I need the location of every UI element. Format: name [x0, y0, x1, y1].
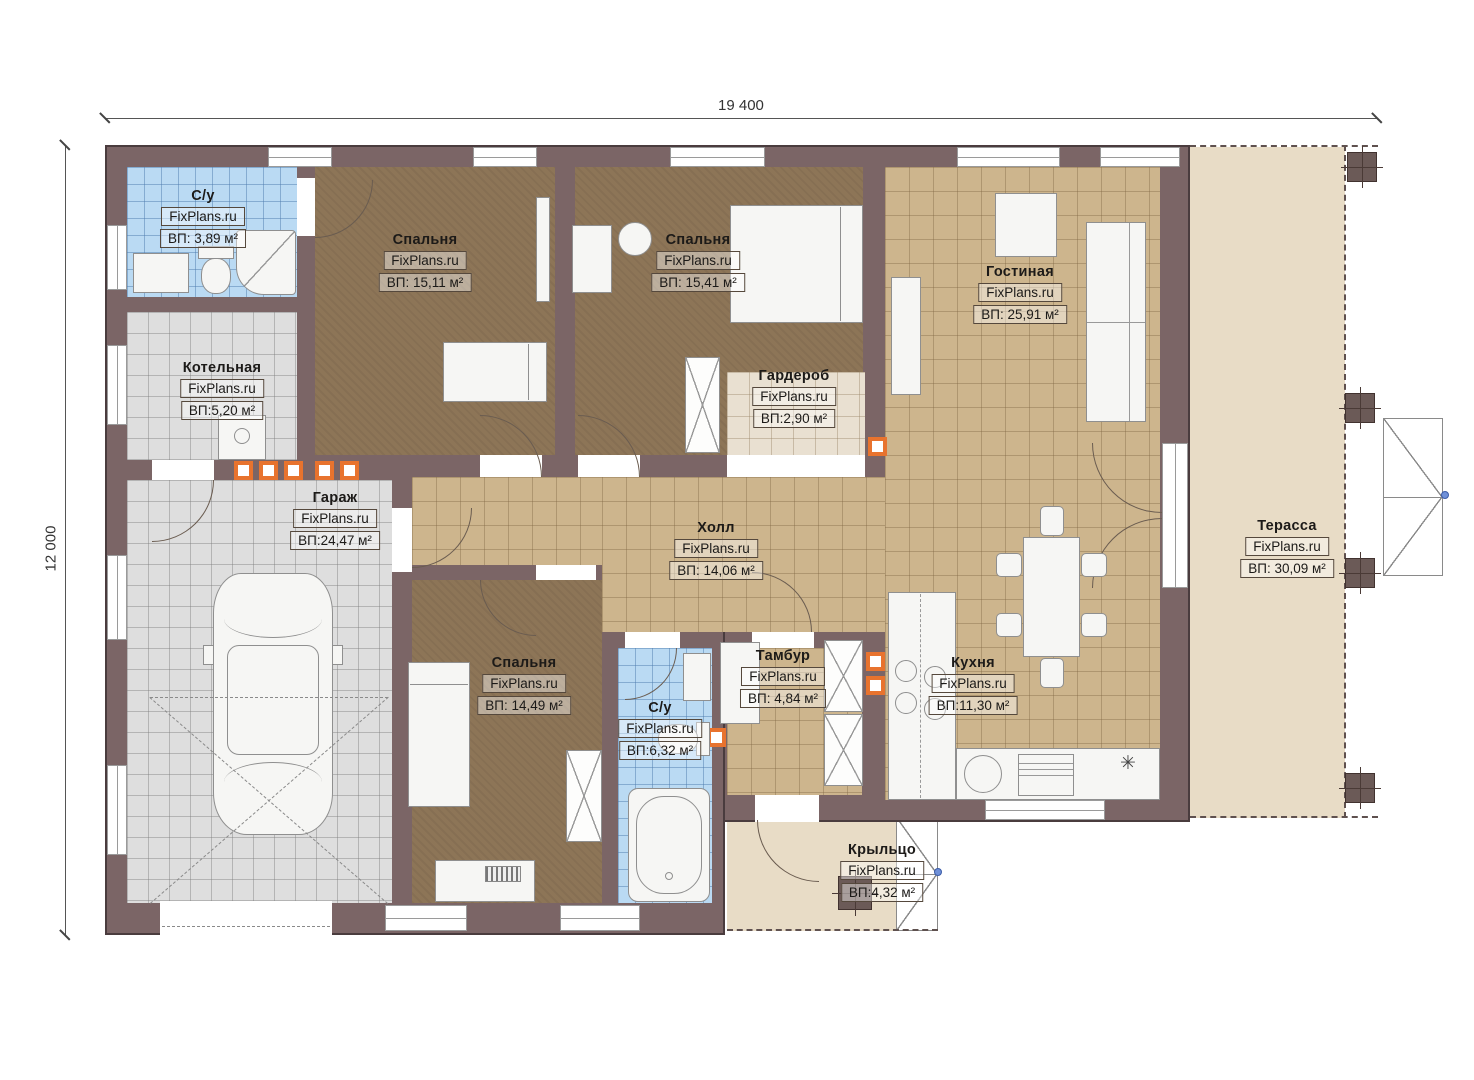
- oven: [1018, 754, 1074, 796]
- room-label-bedroom1: Спальня FixPlans.ru ВП: 15,11 м²: [379, 232, 472, 292]
- room-label-living: Гостиная FixPlans.ru ВП: 25,91 м²: [973, 264, 1067, 324]
- window: [385, 905, 467, 931]
- dresser-detail: [485, 866, 521, 882]
- car-windshield: [224, 600, 322, 638]
- room-area: ВП:4,32 м²: [841, 883, 923, 902]
- room-name: Спальня: [651, 232, 745, 248]
- room-name: Холл: [669, 520, 763, 536]
- room-label-bath1: С/у FixPlans.ru ВП: 3,89 м²: [160, 188, 246, 248]
- radiator-marker: [315, 461, 334, 480]
- terrace-column: [1345, 558, 1375, 588]
- radiator-marker: [866, 652, 885, 671]
- room-area: ВП: 14,49 м²: [477, 696, 571, 715]
- room-name: Гардероб: [752, 368, 836, 384]
- room-name: Гостиная: [973, 264, 1067, 280]
- room-area: ВП: 15,11 м²: [379, 273, 472, 292]
- window: [107, 345, 127, 425]
- terrace-door-opening: [1162, 443, 1188, 588]
- room-floor-terrace: [1190, 147, 1345, 818]
- chair: [1040, 506, 1064, 536]
- room-name: Крыльцо: [840, 842, 924, 858]
- brand-watermark: FixPlans.ru: [293, 509, 377, 528]
- kitchen-sink: [964, 755, 1002, 793]
- chair: [996, 613, 1022, 637]
- window: [473, 147, 537, 167]
- bathtub-drain: [665, 872, 673, 880]
- bed-head-line: [840, 207, 841, 321]
- room-label-bedroom2: Спальня FixPlans.ru ВП: 15,41 м²: [651, 232, 745, 292]
- garage-gate-opening: [160, 901, 332, 935]
- room-name: Спальня: [477, 655, 571, 671]
- brand-watermark: FixPlans.ru: [931, 674, 1015, 693]
- bed-head-line: [528, 344, 529, 400]
- room-area: ВП:2,90 м²: [753, 409, 835, 428]
- porch-dashed-edge: [727, 929, 938, 931]
- room-area: ВП:5,20 м²: [181, 401, 263, 420]
- terrace-column: [1347, 152, 1377, 182]
- door-opening: [727, 455, 865, 477]
- room-name: Кухня: [929, 655, 1018, 671]
- door-opening: [297, 178, 315, 236]
- door-opening: [152, 460, 214, 480]
- boiler-dial: [234, 428, 250, 444]
- tv-cabinet: [995, 193, 1057, 257]
- terrace-steps: [1383, 418, 1443, 576]
- bed-head-line: [410, 684, 468, 685]
- room-name: Котельная: [180, 360, 264, 376]
- sofa: [1086, 222, 1146, 422]
- brand-watermark: FixPlans.ru: [482, 674, 566, 693]
- wardrobe-cabinet: [685, 357, 720, 453]
- toilet-bowl: [201, 258, 231, 294]
- room-name: С/у: [618, 700, 702, 716]
- brand-watermark: FixPlans.ru: [383, 251, 467, 270]
- freezer-symbol: ✳: [1120, 752, 1136, 775]
- desk: [572, 225, 612, 293]
- window: [107, 555, 127, 640]
- chair: [1081, 553, 1107, 577]
- brand-watermark: FixPlans.ru: [840, 861, 924, 880]
- handle-dot: [1441, 491, 1449, 499]
- door-opening: [625, 632, 680, 648]
- window: [560, 905, 640, 931]
- wardrobe-cabinet: [824, 640, 863, 712]
- room-label-garage: Гараж FixPlans.ru ВП:24,47 м²: [290, 490, 380, 550]
- dimension-width-label: 19 400: [718, 97, 764, 114]
- shelf-unit: [891, 277, 921, 395]
- counter-dashed-line: [920, 594, 921, 798]
- window: [1100, 147, 1180, 167]
- terrace-dashed-edge-bottom: [1190, 816, 1378, 818]
- window: [985, 800, 1105, 820]
- wardrobe-strip: [536, 197, 550, 302]
- radiator-marker: [284, 461, 303, 480]
- room-area: ВП:24,47 м²: [290, 531, 380, 550]
- window: [268, 147, 332, 167]
- handle-dot: [934, 868, 942, 876]
- terrace-dashed-edge-top: [1190, 145, 1378, 147]
- room-label-bedroom3: Спальня FixPlans.ru ВП: 14,49 м²: [477, 655, 571, 715]
- brand-watermark: FixPlans.ru: [741, 667, 825, 686]
- stove-burner: [895, 660, 917, 682]
- garage-marking: [150, 697, 388, 698]
- room-label-kitchen: Кухня FixPlans.ru ВП:11,30 м²: [929, 655, 1018, 715]
- room-label-porch: Крыльцо FixPlans.ru ВП:4,32 м²: [840, 842, 924, 902]
- room-area: ВП: 4,84 м²: [740, 689, 826, 708]
- chair: [1040, 658, 1064, 688]
- room-label-bath2: С/у FixPlans.ru ВП:6,32 м²: [618, 700, 702, 760]
- dimension-line-top: [105, 118, 1377, 119]
- room-label-tambur: Тамбур FixPlans.ru ВП: 4,84 м²: [740, 648, 826, 708]
- room-area: ВП: 3,89 м²: [160, 229, 246, 248]
- wardrobe-cabinet: [824, 714, 863, 786]
- garage-gate-dashed: [162, 926, 330, 927]
- room-name: С/у: [160, 188, 246, 204]
- brand-watermark: FixPlans.ru: [618, 719, 702, 738]
- terrace-dashed-edge-right: [1344, 145, 1346, 818]
- car-mirror: [332, 645, 343, 665]
- radiator-marker: [259, 461, 278, 480]
- wardrobe-cabinet: [566, 750, 602, 842]
- radiator-marker: [340, 461, 359, 480]
- car-roof: [227, 645, 319, 755]
- bed: [443, 342, 547, 402]
- brand-watermark: FixPlans.ru: [978, 283, 1062, 302]
- room-area: ВП: 14,06 м²: [669, 561, 763, 580]
- sink: [133, 253, 189, 293]
- chair: [618, 222, 652, 256]
- room-label-hall: Холл FixPlans.ru ВП: 14,06 м²: [669, 520, 763, 580]
- brand-watermark: FixPlans.ru: [752, 387, 836, 406]
- room-name: Терасса: [1240, 518, 1334, 534]
- window: [107, 765, 127, 855]
- room-label-terrace: Терасса FixPlans.ru ВП: 30,09 м²: [1240, 518, 1334, 578]
- bed: [730, 205, 863, 323]
- brand-watermark: FixPlans.ru: [180, 379, 264, 398]
- radiator-marker: [866, 676, 885, 695]
- room-name: Гараж: [290, 490, 380, 506]
- chair: [1081, 613, 1107, 637]
- entry-door-opening: [755, 795, 819, 822]
- room-area: ВП: 15,41 м²: [651, 273, 745, 292]
- door-opening: [536, 565, 596, 580]
- door-opening: [752, 632, 814, 648]
- room-area: ВП: 25,91 м²: [973, 305, 1067, 324]
- brand-watermark: FixPlans.ru: [1245, 537, 1329, 556]
- terrace-column: [1345, 393, 1375, 423]
- room-name: Тамбур: [740, 648, 826, 664]
- room-name: Спальня: [379, 232, 472, 248]
- dimension-line-left: [65, 145, 66, 935]
- brand-watermark: FixPlans.ru: [656, 251, 740, 270]
- dining-table: [1023, 537, 1080, 657]
- brand-watermark: FixPlans.ru: [161, 207, 245, 226]
- stove-burner: [895, 692, 917, 714]
- washbasin: [683, 653, 711, 701]
- window: [957, 147, 1060, 167]
- floor-plan: 19 400 12 000: [0, 0, 1474, 1080]
- radiator-marker: [868, 437, 887, 456]
- chair: [996, 553, 1022, 577]
- car-mirror: [203, 645, 214, 665]
- room-label-wardrobe: Гардероб FixPlans.ru ВП:2,90 м²: [752, 368, 836, 428]
- brand-watermark: FixPlans.ru: [674, 539, 758, 558]
- room-area: ВП: 30,09 м²: [1240, 559, 1334, 578]
- room-label-boiler: Котельная FixPlans.ru ВП:5,20 м²: [180, 360, 264, 420]
- terrace-column: [1345, 773, 1375, 803]
- radiator-marker: [234, 461, 253, 480]
- window: [107, 225, 127, 290]
- room-area: ВП:6,32 м²: [619, 741, 701, 760]
- door-opening: [392, 508, 412, 572]
- room-area: ВП:11,30 м²: [929, 696, 1018, 715]
- dimension-height-label: 12 000: [42, 526, 59, 572]
- window: [670, 147, 765, 167]
